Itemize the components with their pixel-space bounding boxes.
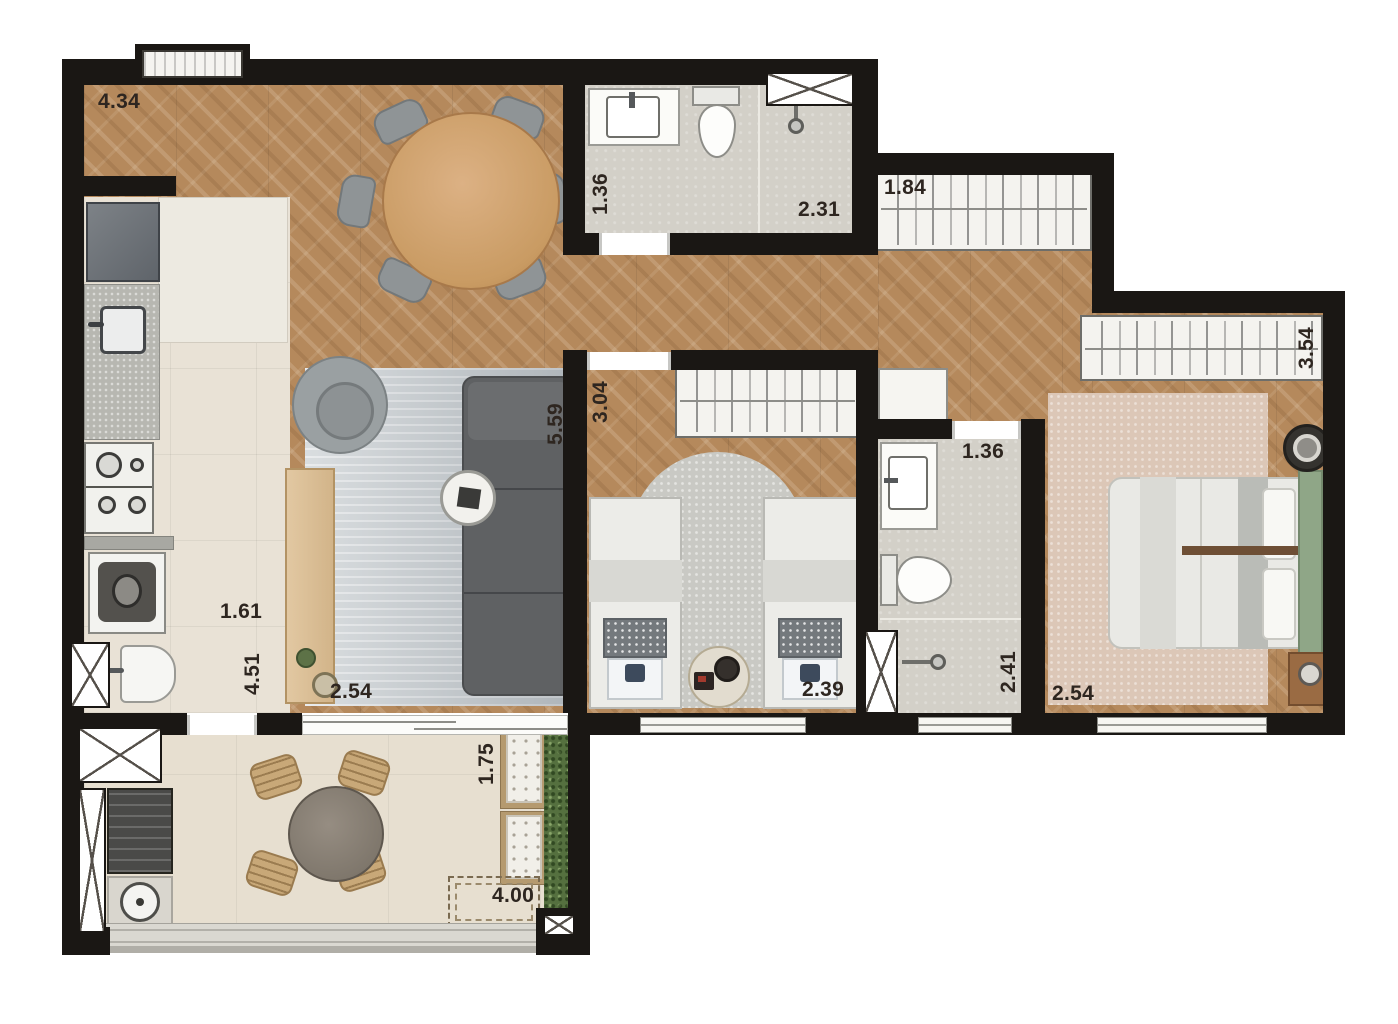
wall-bath2-top xyxy=(878,419,952,439)
dim-bath2-length: 2.41 xyxy=(996,636,1022,708)
sliding-door-rail xyxy=(303,721,456,723)
closet-rail xyxy=(1085,348,1318,350)
balcony-table xyxy=(288,786,384,882)
master-lamp xyxy=(1298,662,1322,686)
bench-cushion xyxy=(506,815,542,879)
dim-master-closet: 3.54 xyxy=(1294,312,1320,384)
bath1-divider xyxy=(758,85,760,233)
bed2-table-hat xyxy=(714,656,740,682)
master-window xyxy=(1097,717,1267,733)
wall-bed2-top xyxy=(671,350,860,370)
shower2-head xyxy=(930,654,946,670)
bench-cushion xyxy=(506,733,542,803)
master-nightstand-ring xyxy=(1293,434,1321,462)
shaft-bath2 xyxy=(864,630,898,714)
stove-burner xyxy=(96,452,122,478)
dim-living-length: 5.59 xyxy=(543,388,569,460)
bed2-right-pillow xyxy=(778,618,842,658)
kitchen-faucet xyxy=(88,322,104,327)
master-headboard xyxy=(1298,470,1323,654)
bath2-window xyxy=(918,717,1012,733)
wall-closet-top xyxy=(852,153,1114,175)
dim-bedroom2-width: 3.04 xyxy=(588,366,614,438)
floor-plan: 4.34 1.36 2.31 1.84 3.54 3.04 5.59 1.36 … xyxy=(0,0,1398,1024)
dim-living-width: 2.54 xyxy=(330,680,372,704)
toilet1-tank xyxy=(692,86,740,106)
kitchen-balcony-door xyxy=(187,715,257,735)
dim-kitchen-width: 1.61 xyxy=(220,600,262,624)
shaft-balcony-large xyxy=(78,727,162,783)
laundry-tub xyxy=(120,645,176,703)
wall-master-top xyxy=(1092,291,1345,313)
dining-table xyxy=(382,112,560,290)
plant-pot xyxy=(296,648,316,668)
bed2-left-clothes-detail xyxy=(625,664,645,682)
balcony-sink-drain xyxy=(136,898,144,906)
wall-closet-right xyxy=(1092,153,1114,313)
kitchen-shelf xyxy=(84,536,174,550)
bath1-door xyxy=(599,233,670,255)
bed2-table-bag-label xyxy=(698,676,706,682)
armchair-cushion xyxy=(316,382,374,440)
wall-bath1-bottom-b xyxy=(670,233,878,255)
wall-living-balcony-stub xyxy=(257,713,302,735)
bed2-left-blanket xyxy=(589,560,682,602)
bedroom2-closet xyxy=(675,362,860,438)
dim-living-top: 4.34 xyxy=(98,90,140,114)
dim-bath1-length: 2.31 xyxy=(798,198,840,222)
dim-kitchen-length: 4.51 xyxy=(240,638,266,710)
wall-kitchen-stub xyxy=(80,176,176,196)
bath2-sink xyxy=(888,456,928,510)
master-duvet-fold xyxy=(1140,477,1176,649)
master-closet xyxy=(1080,315,1323,381)
bath2-faucet xyxy=(884,478,898,483)
dim-bedroom2-length: 2.39 xyxy=(802,678,844,702)
wall-bath1-bottom-a xyxy=(563,233,599,255)
master-bed-strap xyxy=(1182,546,1298,555)
bed2-right-blanket xyxy=(763,560,858,602)
living-balcony-sliding-door xyxy=(302,715,568,735)
dim-bath2-width: 1.36 xyxy=(962,440,1004,464)
bed2-left-pillow xyxy=(603,618,667,658)
master-duvet-seam xyxy=(1200,479,1202,647)
dim-hall-closet: 1.84 xyxy=(884,176,926,200)
shaft-bath1 xyxy=(766,72,854,106)
shaft-balcony-tall xyxy=(78,788,106,933)
wall-right xyxy=(1323,291,1345,735)
hall-cabinet xyxy=(878,368,948,424)
coffee-table-tray xyxy=(457,487,482,510)
wall-bath1-left xyxy=(563,59,585,255)
top-window xyxy=(142,50,243,78)
oven-window xyxy=(112,574,142,608)
kitchen-sink xyxy=(100,306,146,354)
dim-balcony-depth: 1.75 xyxy=(474,728,500,800)
dim-bath1-width: 1.36 xyxy=(588,158,614,230)
closet-rail xyxy=(881,208,1087,210)
balcony-railing-base xyxy=(84,946,540,953)
master-pillow xyxy=(1262,568,1296,640)
dim-balcony-length: 4.00 xyxy=(492,884,534,908)
bath1-faucet xyxy=(629,92,635,108)
bath2-divider xyxy=(880,618,1021,620)
bath2-door xyxy=(952,421,1021,439)
shaft-balcony-corner xyxy=(543,914,575,936)
shower1-head xyxy=(788,118,804,134)
stove-burner xyxy=(130,458,144,472)
stove-burner xyxy=(128,496,146,514)
fridge xyxy=(86,202,160,282)
bedroom2-window xyxy=(640,717,806,733)
shaft-laundry xyxy=(70,642,110,708)
tv-console xyxy=(285,468,335,704)
sofa-seam xyxy=(464,592,572,594)
dim-master-width: 2.54 xyxy=(1052,682,1094,706)
closet-rail xyxy=(680,400,855,402)
stove-burner xyxy=(98,496,116,514)
stove-grate-line xyxy=(86,486,152,488)
hedge-plants xyxy=(544,729,570,921)
wall-bath2-right xyxy=(1021,419,1045,713)
grill xyxy=(107,788,173,874)
kitchen-counter-slab xyxy=(158,197,288,343)
